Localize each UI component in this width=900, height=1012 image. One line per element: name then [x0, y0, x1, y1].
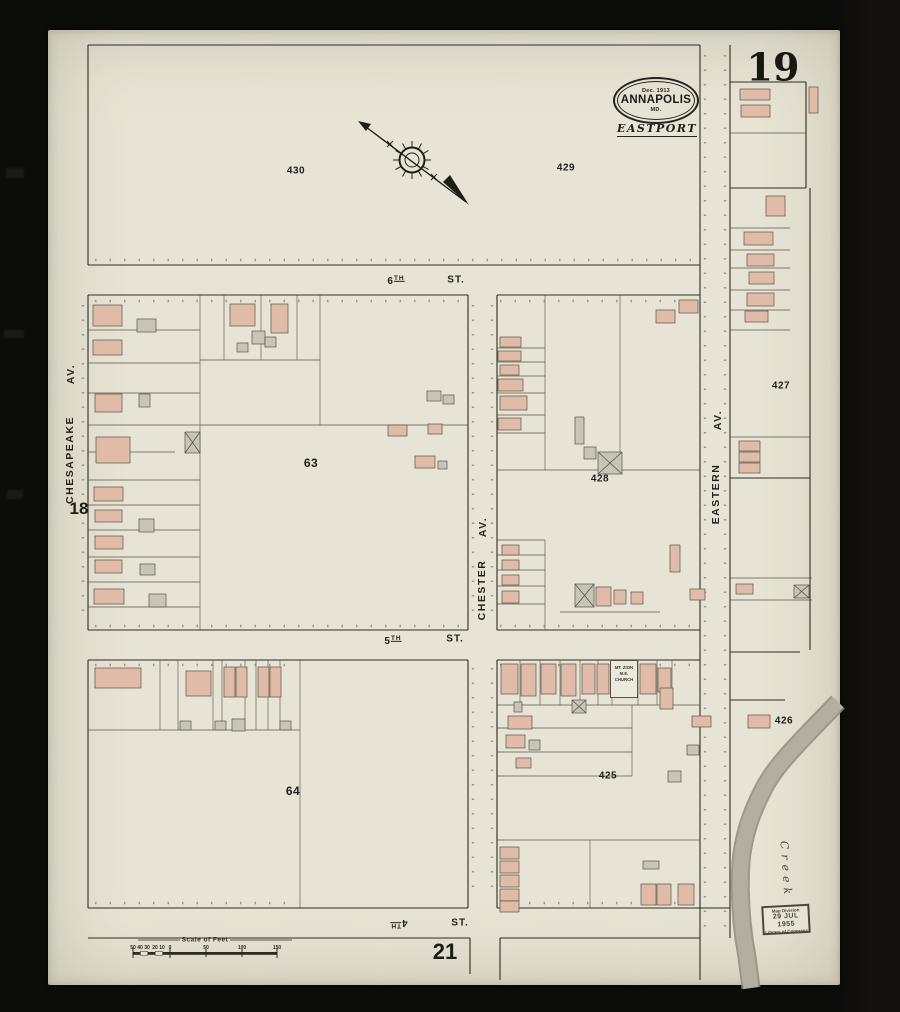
building-footprint	[265, 337, 276, 347]
building-footprint	[500, 889, 519, 901]
street-eastern-suffix: AV.	[712, 410, 724, 430]
block-number-426: 426	[775, 716, 793, 727]
building-footprint	[741, 105, 770, 117]
building-footprint	[215, 721, 226, 730]
building-footprint	[766, 196, 785, 216]
building-footprint	[270, 667, 281, 697]
church-name-line1: MT. ZION	[612, 665, 637, 670]
street-4th-label: 4TH	[390, 917, 407, 929]
building-footprint	[541, 664, 556, 694]
building-footprint	[809, 87, 818, 113]
building-footprint	[502, 545, 519, 555]
building-footprint	[149, 594, 166, 607]
district-label: EASTPORT	[617, 119, 697, 137]
building-footprint	[582, 664, 595, 694]
lot-number-marks	[83, 55, 725, 930]
block-number-63: 63	[304, 456, 318, 470]
building-footprint	[643, 861, 659, 869]
building-footprint	[96, 437, 130, 463]
building-footprint	[427, 391, 441, 401]
building-footprint	[739, 463, 760, 473]
scale-tick: 50	[130, 945, 136, 951]
building-footprint	[747, 254, 774, 266]
building-footprint	[501, 664, 518, 694]
building-footprint	[95, 668, 141, 688]
building-footprint	[529, 740, 540, 750]
building-footprint	[739, 441, 760, 451]
scale-tick: 30	[144, 945, 150, 951]
building-footprint	[749, 272, 774, 284]
scale-tick: 100	[238, 945, 246, 951]
building-footprint	[500, 847, 519, 859]
building-footprint	[687, 745, 699, 755]
street-chester-suffix: AV.	[477, 517, 489, 537]
building-footprint	[561, 664, 576, 696]
scan-background: 19 Dec. 1913 ANNAPOLIS MD. EASTPORT 6TH …	[0, 0, 900, 1012]
building-footprint	[230, 304, 255, 326]
building-footprint	[498, 418, 521, 430]
street-chesapeake-label: CHESAPEAKE	[64, 416, 76, 504]
building-footprint	[500, 365, 519, 375]
building-footprint	[690, 589, 705, 600]
street-5th-suffix: ST.	[446, 634, 463, 645]
building-footprint	[500, 901, 519, 912]
title-oval: Dec. 1913 ANNAPOLIS MD.	[613, 77, 699, 124]
church-building: MT. ZION M.E. CHURCH	[610, 660, 638, 698]
building-footprint	[232, 719, 245, 731]
building-footprint	[521, 664, 536, 696]
building-footprint	[736, 584, 753, 594]
building-footprint	[139, 394, 150, 407]
building-footprint	[514, 702, 522, 712]
building-footprint	[93, 340, 122, 355]
compass-rose-icon	[358, 121, 469, 205]
building-footprint	[739, 452, 760, 462]
title-state: MD.	[651, 107, 662, 113]
scale-tick: 40	[137, 945, 143, 951]
building-footprint	[740, 89, 770, 100]
building-footprint	[94, 589, 124, 604]
building-footprint	[660, 688, 673, 709]
building-footprint	[679, 300, 698, 313]
church-name-line2: M.E. CHURCH	[612, 671, 637, 681]
building-footprint	[140, 564, 155, 575]
block-number-429: 429	[557, 163, 575, 174]
library-stamp: Map Division 29 JUL 1955 Library of Cong…	[761, 904, 810, 935]
street-chesapeake-suffix: AV.	[65, 364, 77, 384]
building-footprint	[500, 337, 521, 347]
building-footprint	[498, 351, 521, 361]
building-footprint	[388, 425, 407, 436]
building-footprint	[186, 671, 211, 696]
building-footprint	[280, 721, 291, 730]
building-footprint	[640, 664, 656, 694]
building-footprint	[584, 447, 596, 459]
scale-tick: 20	[152, 945, 158, 951]
building-footprint	[502, 591, 519, 603]
building-footprint	[748, 715, 770, 728]
building-footprint	[597, 664, 609, 694]
building-footprint	[93, 305, 122, 326]
building-footprint	[745, 311, 768, 322]
building-footprint	[502, 560, 519, 570]
street-5th-label: 5TH	[384, 635, 401, 647]
scale-tick: 50	[203, 945, 209, 951]
building-footprint	[94, 487, 123, 501]
title-date: Dec. 1913	[642, 88, 670, 94]
building-footprint	[137, 319, 156, 332]
building-footprint	[631, 592, 643, 604]
block-number-427: 427	[772, 381, 790, 392]
building-footprint	[668, 771, 681, 782]
street-chester-label: CHESTER	[476, 560, 488, 621]
building-footprint	[575, 417, 584, 444]
building-footprint	[500, 396, 527, 410]
building-footprint	[498, 379, 523, 391]
scale-tick: 0	[169, 945, 172, 951]
building-footprint	[415, 456, 435, 468]
building-footprint	[443, 395, 454, 404]
adjacent-sheet-18: 18	[70, 499, 89, 519]
building-footprint	[614, 590, 626, 604]
building-footprint	[236, 667, 247, 697]
building-footprint	[670, 545, 680, 572]
building-footprint	[502, 575, 519, 585]
street-6th-label: 6TH	[387, 275, 404, 287]
block-number-64: 64	[286, 784, 300, 798]
building-footprint	[641, 884, 656, 905]
scale-title: Scale of Feet	[182, 937, 229, 944]
map-drawing	[0, 0, 900, 1012]
building-footprint	[747, 293, 774, 306]
building-footprint	[692, 716, 711, 727]
building-footprint	[95, 510, 122, 522]
scale-tick: 150	[273, 945, 281, 951]
block-number-425: 425	[599, 771, 617, 782]
building-footprint	[95, 560, 122, 573]
building-footprint	[656, 310, 675, 323]
adjacent-sheet-21: 21	[433, 939, 457, 965]
building-footprint	[516, 758, 531, 768]
building-footprint	[596, 587, 611, 606]
street-eastern-label: EASTERN	[710, 464, 722, 525]
lot-lines	[88, 133, 812, 908]
building-footprint	[271, 304, 288, 333]
building-footprint	[139, 519, 154, 532]
building-footprint	[428, 424, 442, 434]
building-footprint	[657, 884, 671, 905]
building-footprint	[508, 716, 532, 729]
title-city: ANNAPOLIS	[621, 94, 691, 107]
building-footprint	[95, 536, 123, 549]
building-footprint	[500, 875, 519, 887]
building-footprint	[678, 884, 694, 905]
building-footprint	[252, 331, 265, 344]
street-4th-suffix: ST.	[451, 918, 468, 929]
block-number-430: 430	[287, 166, 305, 177]
building-footprint	[744, 232, 773, 245]
building-footprint	[506, 735, 525, 748]
street-6th-suffix: ST.	[447, 275, 464, 286]
building-footprint	[180, 721, 191, 730]
building-footprint	[438, 461, 447, 469]
building-footprint	[237, 343, 248, 352]
building-footprint	[95, 394, 122, 412]
building-footprint	[258, 667, 269, 697]
building-footprint	[224, 667, 235, 697]
scale-tick: 10	[159, 945, 165, 951]
building-footprint	[500, 861, 519, 873]
sheet-number: 19	[747, 45, 800, 90]
block-number-428: 428	[591, 474, 609, 485]
